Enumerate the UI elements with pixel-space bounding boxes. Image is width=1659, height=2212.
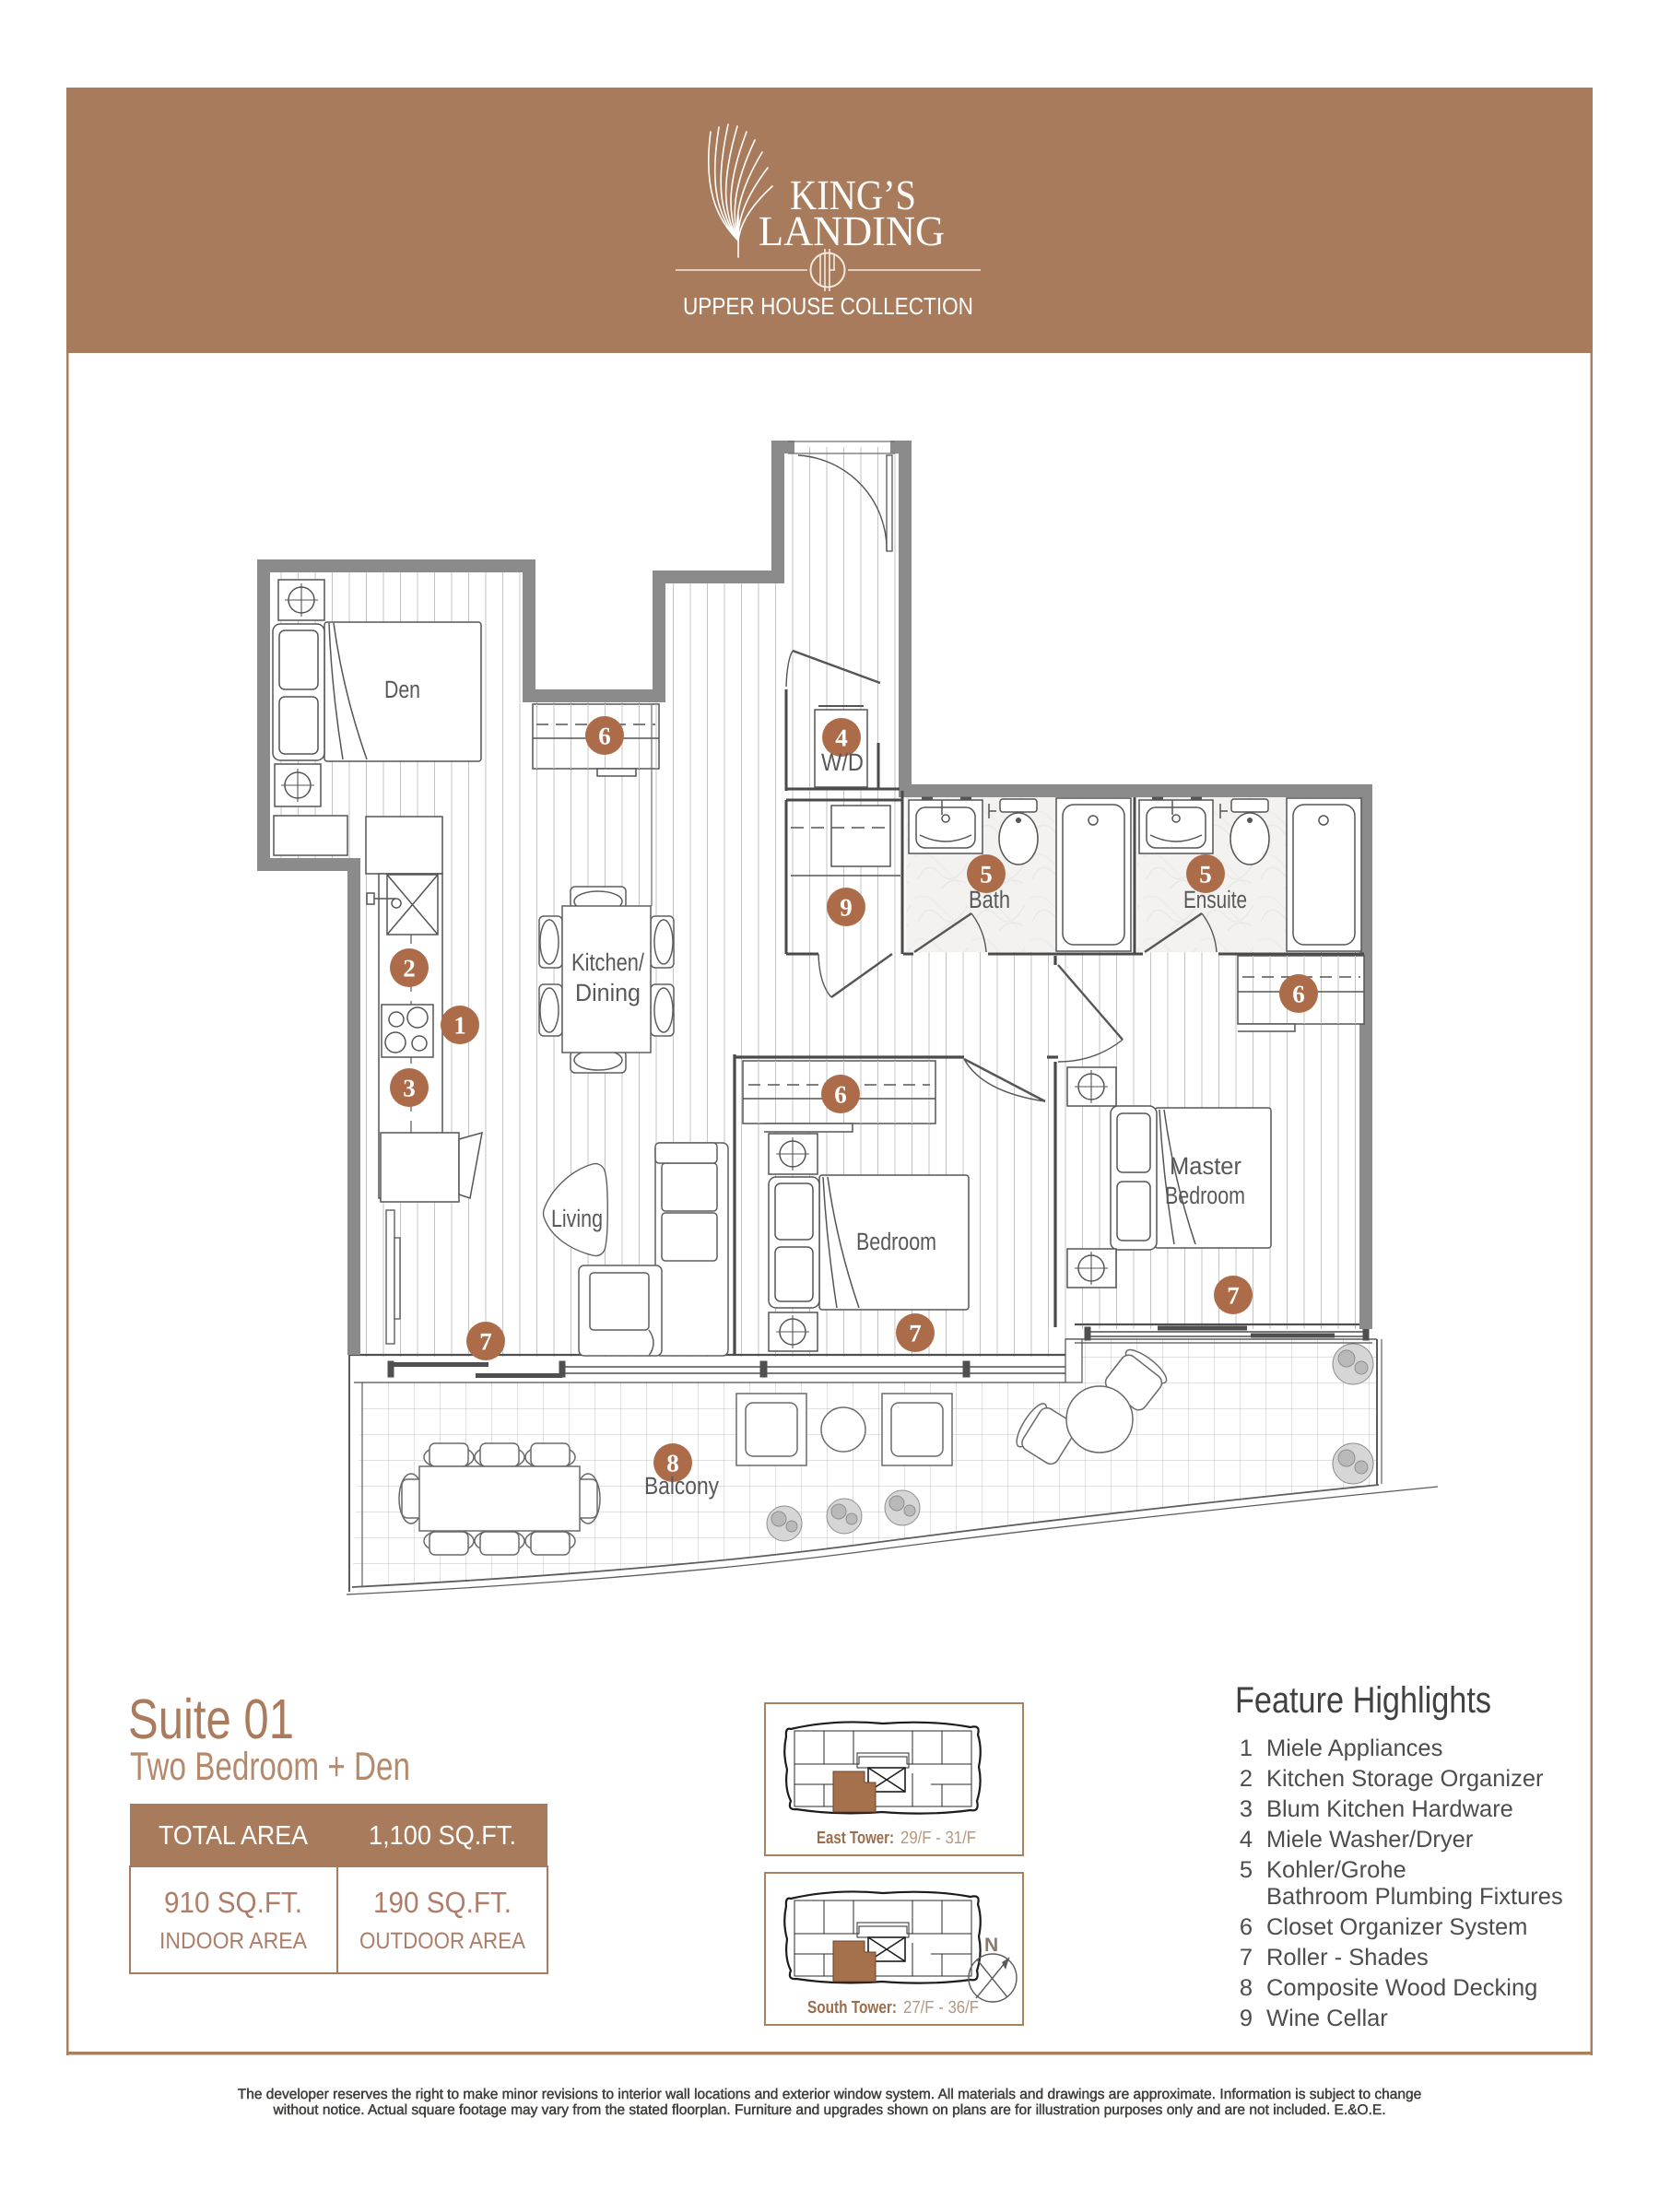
svg-text:Bedroom: Bedroom: [856, 1228, 936, 1255]
svg-text:Kitchen Storage Organizer: Kitchen Storage Organizer: [1266, 1766, 1544, 1792]
svg-text:Blum Kitchen Hardware: Blum Kitchen Hardware: [1266, 1796, 1513, 1822]
svg-text:Feature Highlights: Feature Highlights: [1235, 1680, 1491, 1721]
svg-text:Kohler/Grohe: Kohler/Grohe: [1266, 1857, 1406, 1883]
svg-text:2: 2: [403, 955, 416, 982]
svg-text:TOTAL AREA: TOTAL AREA: [159, 1821, 309, 1851]
svg-text:Bedroom: Bedroom: [1165, 1182, 1245, 1209]
svg-text:6: 6: [1292, 981, 1305, 1008]
svg-text:Composite Wood Decking: Composite Wood Decking: [1266, 1975, 1537, 2001]
svg-text:South Tower:: South Tower:: [807, 1998, 897, 2018]
svg-text:N: N: [984, 1935, 998, 1956]
svg-text:Miele Appliances: Miele Appliances: [1266, 1735, 1442, 1761]
svg-text:8: 8: [1240, 1975, 1253, 2001]
svg-text:6: 6: [598, 723, 611, 750]
svg-text:Two Bedroom + Den: Two Bedroom + Den: [130, 1745, 410, 1789]
svg-text:3: 3: [403, 1075, 416, 1102]
svg-text:5: 5: [1240, 1857, 1253, 1883]
svg-text:Bath: Bath: [969, 886, 1010, 913]
svg-text:The developer reserves the rig: The developer reserves the right to make…: [238, 2087, 1422, 2102]
svg-text:1: 1: [453, 1012, 466, 1040]
svg-text:7: 7: [479, 1328, 492, 1356]
svg-text:INDOOR AREA: INDOOR AREA: [159, 1928, 307, 1954]
svg-text:910 SQ.FT.: 910 SQ.FT.: [164, 1886, 302, 1919]
svg-text:5: 5: [1199, 861, 1212, 888]
svg-text:29/F - 31/F: 29/F - 31/F: [900, 1829, 976, 1848]
svg-text:Den: Den: [384, 676, 420, 703]
svg-text:6: 6: [834, 1081, 847, 1109]
svg-text:7: 7: [1240, 1945, 1253, 1971]
svg-text:9: 9: [1240, 2006, 1253, 2031]
svg-text:UPPER HOUSE COLLECTION: UPPER HOUSE COLLECTION: [683, 292, 973, 320]
svg-text:Ensuite: Ensuite: [1183, 886, 1247, 913]
svg-text:Kitchen/: Kitchen/: [571, 948, 645, 976]
svg-text:1: 1: [1240, 1735, 1253, 1761]
svg-text:Master: Master: [1170, 1152, 1241, 1180]
svg-text:without notice. Actual square: without notice. Actual square footage ma…: [272, 2102, 1385, 2118]
svg-text:East Tower:: East Tower:: [817, 1829, 894, 1848]
svg-text:OUTDOOR AREA: OUTDOOR AREA: [359, 1928, 525, 1954]
svg-text:Suite 01: Suite 01: [128, 1688, 294, 1750]
svg-text:2: 2: [1240, 1766, 1253, 1792]
svg-text:Wine Cellar: Wine Cellar: [1266, 2006, 1388, 2031]
svg-text:7: 7: [1227, 1282, 1240, 1310]
svg-text:3: 3: [1240, 1796, 1253, 1822]
svg-text:Balcony: Balcony: [644, 1472, 720, 1500]
svg-text:Roller - Shades: Roller - Shades: [1266, 1945, 1429, 1971]
svg-text:27/F - 36/F: 27/F - 36/F: [903, 1998, 979, 2018]
svg-text:9: 9: [840, 894, 853, 922]
svg-text:4: 4: [1240, 1827, 1253, 1853]
svg-text:5: 5: [980, 861, 993, 888]
svg-text:Miele Washer/Dryer: Miele Washer/Dryer: [1266, 1827, 1474, 1853]
svg-text:7: 7: [909, 1320, 922, 1347]
svg-text:LANDING: LANDING: [759, 207, 945, 254]
svg-text:Dining: Dining: [575, 979, 641, 1006]
svg-text:190 SQ.FT.: 190 SQ.FT.: [373, 1886, 512, 1919]
svg-text:W/D: W/D: [821, 748, 864, 776]
svg-text:6: 6: [1240, 1914, 1253, 1940]
svg-text:Closet Organizer System: Closet Organizer System: [1266, 1914, 1527, 1940]
svg-text:1,100 SQ.FT.: 1,100 SQ.FT.: [369, 1821, 516, 1851]
svg-text:Living: Living: [551, 1205, 603, 1232]
svg-text:Bathroom Plumbing Fixtures: Bathroom Plumbing Fixtures: [1266, 1884, 1563, 1910]
svg-text:4: 4: [835, 724, 848, 752]
